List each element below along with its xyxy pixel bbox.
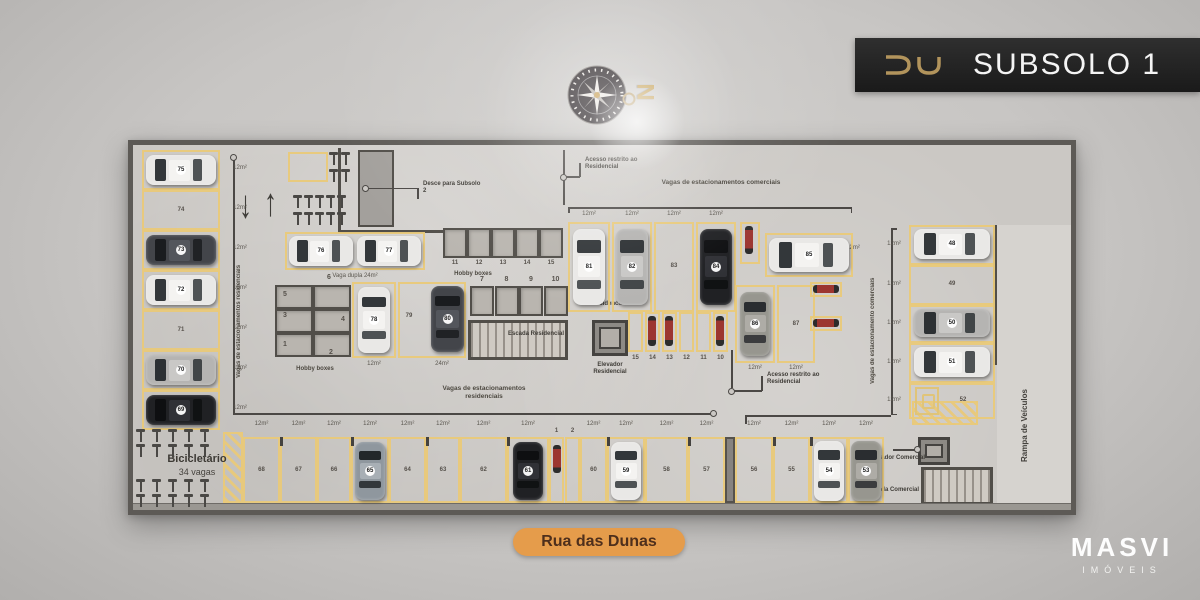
car: 54 (814, 441, 844, 501)
space-number: 52 (948, 397, 978, 403)
space-number: 15 (628, 355, 643, 361)
bicicletario-title: Bicicletário (147, 455, 247, 463)
bicycle-icon (184, 444, 193, 457)
bicycle-icon (168, 444, 177, 457)
callout-line (734, 390, 762, 392)
north-letter: N (631, 83, 659, 100)
hobby-box (519, 286, 543, 316)
space-number: 58 (645, 467, 688, 473)
hobby-box-number: 4 (337, 316, 349, 323)
bicycle-icon (315, 212, 324, 225)
hobby-box-number: 11 (443, 260, 467, 266)
space-size-label: 12m² (881, 359, 907, 365)
commercial-stairs (921, 467, 993, 505)
space-number: 60 (580, 467, 607, 473)
space-size-label: 12m² (815, 421, 843, 427)
bicycle-icon (184, 429, 193, 442)
stage: SUBSOLO 1 N Vagas de estacionamentos res… (0, 0, 1200, 600)
wall-pillar (507, 437, 510, 446)
space-size-label: 12m² (660, 211, 688, 217)
bracket-tick (851, 207, 853, 213)
wall-pillar (810, 437, 813, 446)
arrow-up-icon: ↑ (264, 183, 277, 222)
bicycle-icon (136, 479, 145, 492)
wall-pillar (773, 437, 776, 446)
bicycle-icon (326, 212, 335, 225)
hobby-box (515, 228, 539, 258)
bicycle-icon (184, 479, 193, 492)
space-number: 49 (909, 281, 995, 287)
car-number-badge: 61 (523, 466, 533, 476)
moto-icon (648, 316, 656, 346)
space-number: 14 (645, 355, 660, 361)
space-size-label: 12m² (320, 421, 348, 427)
moto-icon (813, 319, 839, 327)
moto-icon (716, 316, 724, 346)
car: 50 (914, 309, 990, 337)
moto-space (628, 312, 643, 352)
bicycle-icon (152, 494, 161, 507)
space-size-label: 12m² (225, 325, 255, 331)
bicycle-icon (315, 195, 324, 208)
bicycle-icon (200, 429, 209, 442)
car: 65 (355, 442, 385, 500)
bicycle-icon (168, 494, 177, 507)
space-size-label: 12m² (514, 421, 542, 427)
car-number-badge: 84 (711, 262, 721, 272)
hobby-box-number: 6 (323, 274, 335, 281)
car-number-badge: 86 (750, 319, 760, 329)
space-number: 66 (317, 467, 351, 473)
car: 61 (513, 442, 543, 500)
moto-icon (665, 316, 673, 346)
space-size-label: 12m² (225, 165, 255, 171)
space-size-label: 12m² (653, 421, 681, 427)
car: 75 (146, 155, 216, 185)
hobby-box-number: 12 (467, 260, 491, 266)
bicycle-icon (152, 444, 161, 457)
banner-title: SUBSOLO 1 (973, 48, 1161, 82)
space-number: 68 (243, 467, 280, 473)
car: 69 (146, 395, 216, 425)
car: 76 (289, 236, 353, 266)
hobby-box-number: 14 (515, 260, 539, 266)
car-number-badge: 78 (369, 315, 379, 325)
residential-elevator (592, 320, 628, 356)
moto-icon (813, 285, 839, 293)
space-number: 83 (654, 263, 694, 269)
space-size-label: 12m² (356, 421, 384, 427)
brand-logo: MASVI IMÓVEIS (1052, 532, 1192, 575)
space-size-label: 12m² (359, 361, 389, 367)
car-number-badge: 50 (947, 318, 957, 328)
moto-space (565, 437, 580, 503)
bicycle-icon (184, 494, 193, 507)
callout-line (369, 188, 418, 190)
arrow-down-icon: ↓ (239, 185, 252, 224)
car: 73 (146, 235, 216, 265)
space-size-label: 12m² (693, 421, 721, 427)
space-size-label: 12m² (429, 421, 457, 427)
desce-subsolo2-label: Desce para Subsolo 2 (423, 181, 481, 195)
space-size-label: 12m² (702, 211, 730, 217)
space-size-label: 12m² (225, 205, 255, 211)
rampa-veiculos-label: Rampa de Veículos (1021, 373, 1037, 478)
callout-line (579, 163, 581, 177)
wall-pillar (607, 437, 610, 446)
car: 59 (611, 442, 641, 500)
hobby-box (313, 285, 351, 309)
bicicletario-count: 34 vagas (147, 468, 247, 476)
space-size-label: 12m² (225, 285, 255, 291)
hobby-box-number: 3 (279, 312, 291, 319)
space-number: 1 (549, 428, 564, 434)
bicycle-icon (329, 169, 338, 182)
bicycle-icon (293, 195, 302, 208)
space-number: 10 (713, 355, 728, 361)
bracket-tick (891, 228, 897, 230)
bracket-tick (891, 414, 897, 416)
space-number: 62 (460, 467, 507, 473)
car-number-badge: 53 (861, 466, 871, 476)
compass-icon (557, 55, 637, 135)
residential-area-label: Vagas de estacionamentos residenciais (429, 385, 539, 401)
car: 80 (431, 286, 464, 352)
residential-stairs (468, 320, 568, 360)
bicycle-icon (337, 195, 346, 208)
bicycle-icon (341, 152, 350, 165)
car-number-badge: 75 (176, 165, 186, 175)
brand-name: MASVI (1052, 532, 1192, 563)
callout-node (362, 185, 369, 192)
space-size-label: 12m² (881, 397, 907, 403)
car: 53 (851, 441, 881, 501)
car: 78 (358, 287, 390, 353)
space-number: 74 (142, 207, 220, 213)
bicycle-icon (136, 494, 145, 507)
bicycle-icon (341, 169, 350, 182)
title-banner: SUBSOLO 1 (855, 38, 1200, 92)
wall-pillar (725, 437, 735, 503)
car-number-badge: 59 (621, 466, 631, 476)
bicycle-icon (326, 195, 335, 208)
space-number: 2 (565, 428, 580, 434)
bicycle-icon (152, 429, 161, 442)
space-number: 56 (735, 467, 773, 473)
callout-line (566, 176, 580, 178)
bicycle-icon (304, 195, 313, 208)
section-line-horizontal (233, 413, 714, 415)
hobby-box (495, 286, 519, 316)
space-number: 79 (399, 313, 419, 319)
escada-residencial-label: Escada Residencial (507, 331, 565, 338)
callout-line (417, 188, 419, 199)
space-size-label: 12m² (778, 421, 806, 427)
space-size-label: 12m² (612, 421, 640, 427)
space-number: 13 (662, 355, 677, 361)
bicycle-icon (136, 444, 145, 457)
hobby-box (544, 286, 568, 316)
car-number-badge: 54 (824, 466, 834, 476)
hobby-box (491, 228, 515, 258)
hobby-boxes-label: Hobby boxes (279, 365, 351, 373)
acesso-restrito-top-label: Acesso restrito ao Residencial (585, 157, 649, 171)
car: 51 (914, 347, 990, 377)
car-number-badge: 85 (804, 250, 814, 260)
hobby-box-number: 10 (544, 276, 568, 283)
car-number-badge: 72 (176, 285, 186, 295)
du-logo-icon (881, 50, 947, 80)
street-label: Rua das Dunas (513, 528, 685, 556)
space-number: 63 (426, 467, 460, 473)
space-size-label: 12m² (782, 365, 810, 371)
car: 70 (146, 355, 216, 385)
bicycle-icon (200, 494, 209, 507)
car-number-badge: 51 (947, 357, 957, 367)
car-number-badge: 80 (443, 314, 453, 324)
car: 86 (740, 292, 770, 356)
car: 81 (573, 229, 605, 305)
wall-pillar (426, 437, 429, 446)
car: 85 (769, 238, 849, 272)
bracket-line (568, 207, 852, 209)
space-size-label: 12m² (470, 421, 498, 427)
callout-node (914, 446, 921, 453)
car: 82 (616, 229, 648, 305)
space-size-label: 12m² (881, 281, 907, 287)
car-number-badge: 82 (627, 262, 637, 272)
car-number-badge: 65 (365, 466, 375, 476)
hobby-box-number: 7 (470, 276, 494, 283)
car-number-badge: 73 (176, 245, 186, 255)
bicycle-icon (200, 444, 209, 457)
bracket-tick (568, 207, 570, 213)
hobby-box-number: 8 (495, 276, 519, 283)
space-size-label: 12m² (740, 421, 768, 427)
space-number: 12 (679, 355, 694, 361)
callout-line (731, 350, 733, 388)
moto-icon (553, 445, 561, 473)
hobby-box-number: 5 (279, 291, 291, 298)
hobby-box-number: 1 (279, 341, 291, 348)
hobby-box-number: 2 (325, 349, 337, 356)
car-number-badge: 69 (176, 405, 186, 415)
space-number: 55 (773, 467, 810, 473)
space-size-label: 24m² (425, 361, 459, 367)
hobby-box (470, 286, 494, 316)
space-size-label: 12m² (225, 365, 255, 371)
bicycle-icon (337, 212, 346, 225)
brand-tagline: IMÓVEIS (1052, 565, 1192, 575)
car: 48 (914, 229, 990, 259)
bicycle-icon (168, 429, 177, 442)
commercial-top-label: Vagas de estacionamentos comerciais (631, 179, 811, 187)
space-size-label: 12m² (741, 365, 769, 371)
section-line-node (230, 154, 237, 161)
space-size-label: 12m² (881, 320, 907, 326)
hobby-box-number: 9 (519, 276, 543, 283)
wall-pillar (688, 437, 691, 446)
bicycle-icon (152, 479, 161, 492)
bicycle-icon (136, 429, 145, 442)
bicycle-icon (329, 152, 338, 165)
moto-space (679, 312, 694, 352)
space-size-label: 12m² (852, 421, 880, 427)
car-number-badge: 81 (584, 262, 594, 272)
hobby-box-number: 13 (491, 260, 515, 266)
car-number-badge: 76 (316, 246, 326, 256)
hobby-box (539, 228, 563, 258)
space-size-label: 12m² (285, 421, 313, 427)
space-size-label: 12m² (394, 421, 422, 427)
wall-pillar (280, 437, 283, 446)
space-size-label: 12m² (575, 211, 603, 217)
moto-icon (745, 226, 753, 254)
commercial-right-label: Vagas de estacionamento comerciais (869, 273, 887, 388)
section-line-node (710, 410, 717, 417)
space-size-label: 12m² (618, 211, 646, 217)
space-number: 67 (280, 467, 317, 473)
elevador-residencial-label: Elevador Residencial (581, 362, 639, 376)
wall-pillar (351, 437, 354, 446)
space-number: 57 (688, 467, 725, 473)
car: 72 (146, 275, 216, 305)
space-number: 71 (142, 327, 220, 333)
moto-space (696, 312, 711, 352)
space-number: 11 (696, 355, 711, 361)
space-size-label: 12m² (225, 405, 255, 411)
space-number: 64 (389, 467, 426, 473)
car-number-badge: 70 (176, 365, 186, 375)
bicycle-icon (293, 212, 302, 225)
bicycle-icon (304, 212, 313, 225)
hobby-box-number: 15 (539, 260, 563, 266)
bicycle-icon (200, 479, 209, 492)
bicycle-icon (168, 479, 177, 492)
car: 77 (357, 236, 421, 266)
space-size-label: 12m² (225, 245, 255, 251)
accessibility-space-icon (915, 387, 939, 415)
space-size-label: 12m² (881, 241, 907, 247)
space-size-label: 12m² (248, 421, 276, 427)
car-number-badge: 48 (947, 239, 957, 249)
space-size-label: 12m² (580, 421, 608, 427)
sidewalk-strip (133, 503, 1071, 510)
floor-plan: Vagas de estacionamentos residenciais ↓ … (128, 140, 1076, 515)
vaga-dupla-label: Vaga dupla 24m² (295, 273, 415, 279)
car-number-badge: 77 (384, 246, 394, 256)
bracket-line (745, 415, 891, 417)
acesso-restrito-bottom-label: Acesso restrito ao Residencial (767, 372, 829, 386)
callout-line (761, 376, 763, 391)
hobby-box (443, 228, 467, 258)
car: 84 (700, 229, 732, 305)
moto-yard-box (288, 152, 328, 182)
hobby-box (467, 228, 491, 258)
